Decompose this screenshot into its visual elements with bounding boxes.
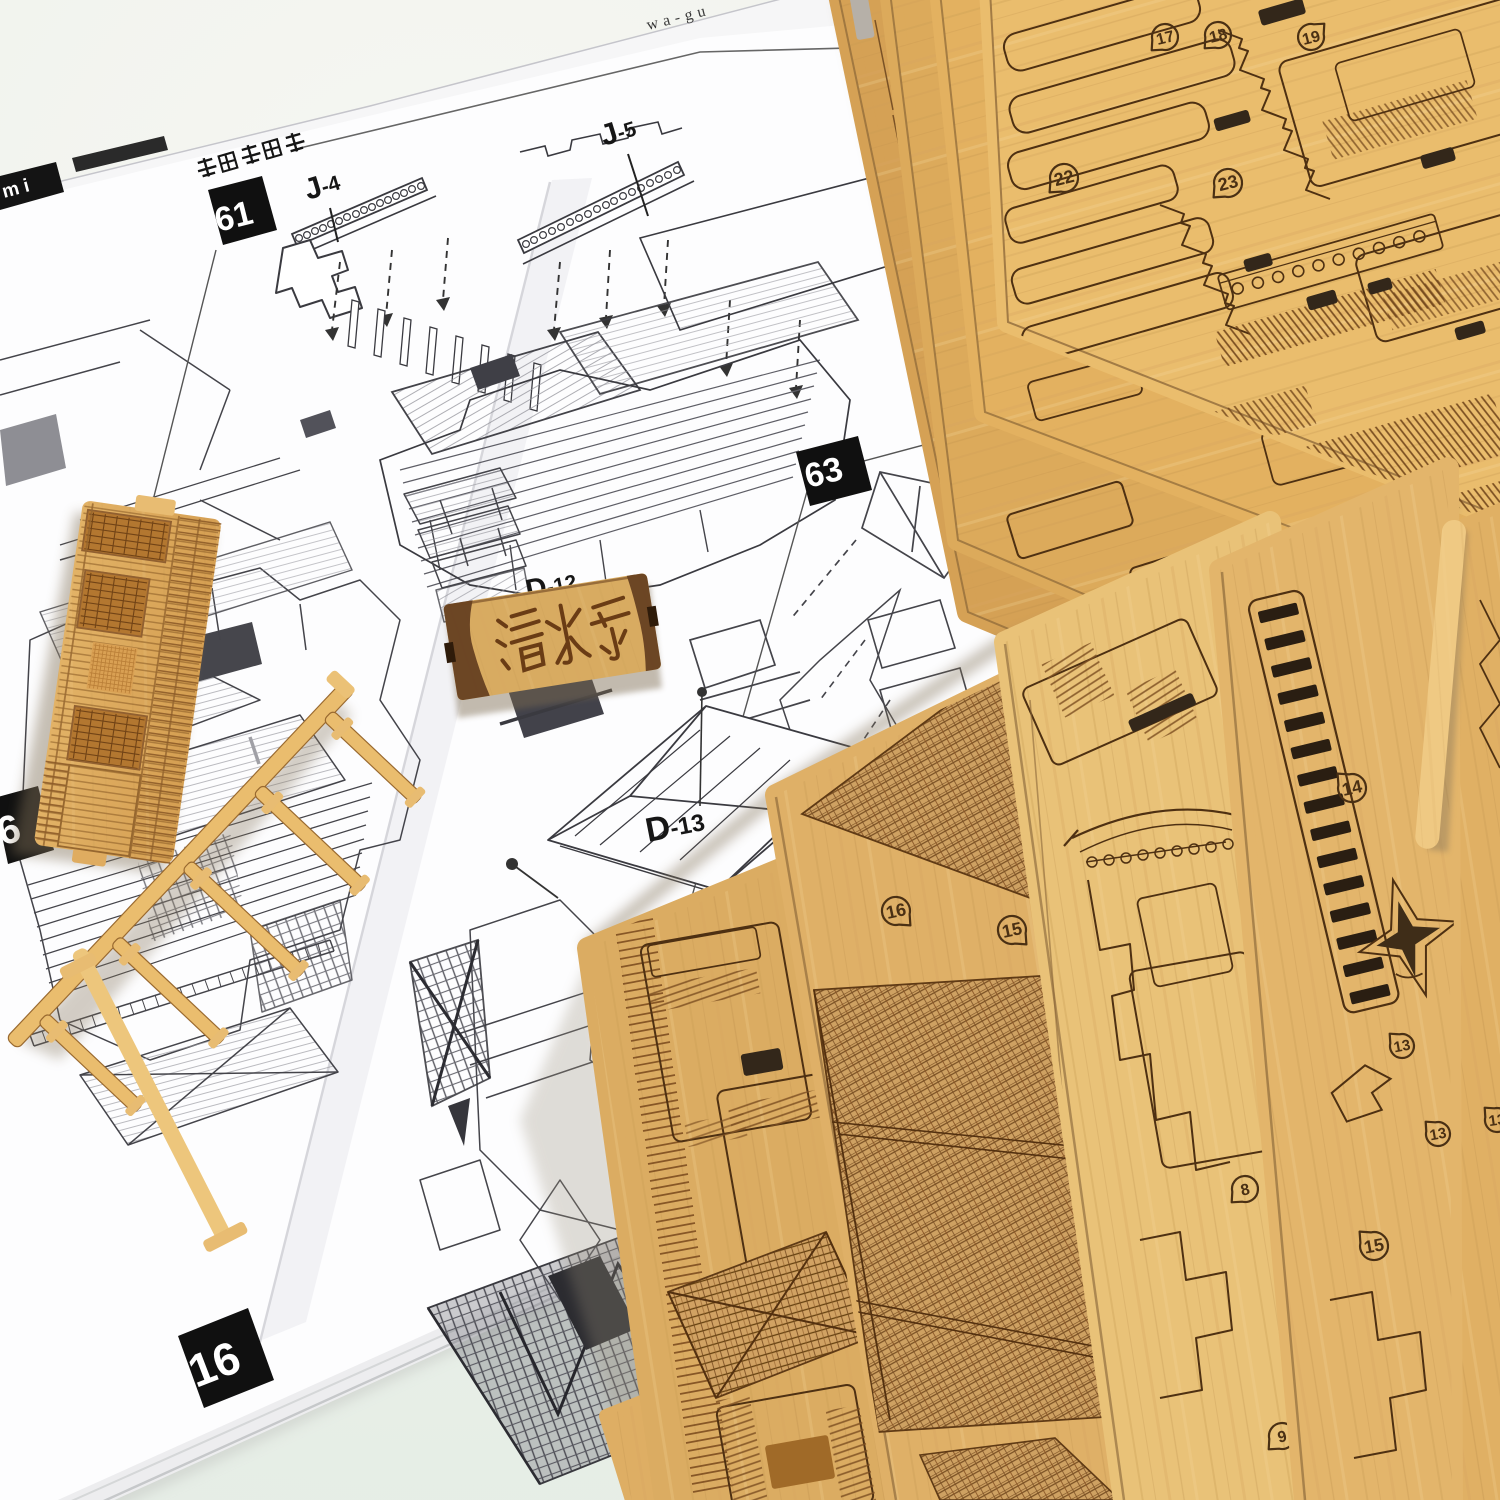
svg-text:13: 13 <box>1428 1125 1447 1145</box>
svg-text:13: 13 <box>1488 1111 1500 1130</box>
svg-text:16: 16 <box>884 899 908 923</box>
svg-text:15: 15 <box>1000 918 1024 942</box>
svg-text:13: 13 <box>1392 1037 1411 1057</box>
svg-text:14: 14 <box>1340 776 1364 800</box>
svg-text:15: 15 <box>1362 1234 1385 1257</box>
